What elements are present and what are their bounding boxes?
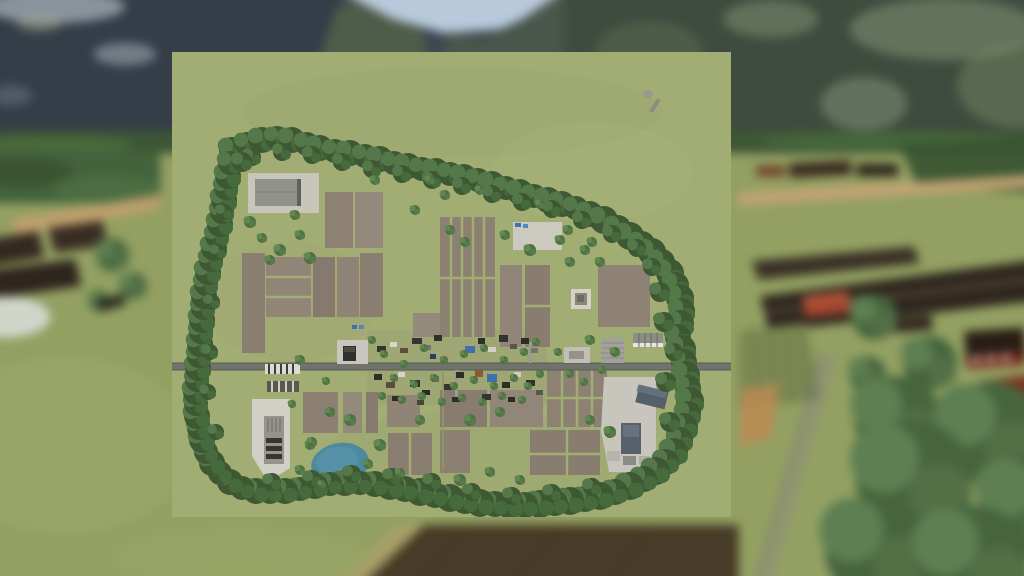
map-tree [568,229,574,235]
map-tree [430,374,435,379]
map-tree [295,214,301,220]
forest-tree-cluster [494,501,508,515]
forest-tree-cluster [627,239,638,250]
map-tree [450,382,455,387]
village-building [502,382,510,388]
map-tree [500,356,505,361]
map-tree [554,348,559,353]
map-tree [307,437,313,443]
forest-tree-cluster [599,493,614,508]
map-tree [425,175,431,181]
foreground-tree [850,378,902,430]
forest-tree-cluster [248,128,264,144]
forest-tree-cluster [217,152,231,166]
village-building [475,370,483,377]
map-tree [382,395,386,399]
map-tree [273,244,280,251]
map-tree [484,347,488,351]
map-tree [584,381,588,385]
map-tree [373,439,380,446]
map-tree [504,359,508,363]
map-tree [592,241,598,247]
map-tree [424,347,428,351]
village-building [374,374,382,380]
map-tree [485,467,491,473]
map-tree [363,459,369,465]
map-tree [290,210,296,216]
map-tree [602,369,606,373]
village-building [531,348,538,353]
forest-tree-cluster [215,204,225,214]
forest-tree-cluster [231,153,243,165]
forest-tree-cluster [663,320,674,331]
map-preview-overlay [172,52,731,517]
forest-tree-cluster [211,300,220,309]
map-tree [265,255,271,261]
forest-tree-cluster [207,424,217,434]
field-plot [366,392,378,433]
forest-tree-cluster [255,488,269,502]
map-tree [459,479,466,486]
village-building [536,390,543,395]
map-tree [609,431,616,438]
map-tree [402,399,406,403]
stall-front [633,343,663,347]
map-tree [378,392,383,397]
scree [723,0,818,37]
field-plot [413,313,440,337]
forest-tree-cluster [351,472,361,482]
blue-bin [352,325,357,329]
map-tree [480,189,486,195]
forest-tree-cluster [217,250,226,259]
map-tree [257,233,263,239]
map-tree [249,221,256,228]
forest-tree-cluster [223,210,232,219]
map-tree [453,474,460,481]
forest-tree-cluster [264,127,278,141]
map-tree [322,483,326,487]
map-tree [565,257,571,263]
map-tree [598,366,603,371]
map-tree [420,344,425,349]
field-plot [360,253,383,317]
blue-equipment [515,223,521,227]
forest-tree-cluster [382,468,393,479]
silo-bar [266,438,282,443]
forest-tree-cluster [461,184,471,194]
forest-tree-cluster [434,492,448,506]
map-tree [600,261,606,267]
forest-tree-cluster [201,344,211,354]
map-tree [535,199,541,205]
map-tree [590,419,596,425]
blue-equipment [523,224,528,228]
map-tree [570,373,574,377]
forest-tree-cluster [611,232,621,242]
barn-roof-2-light [623,425,639,437]
field-plot [500,265,522,347]
map-tree [522,399,526,403]
map-tree [322,377,327,382]
forest-tree-cluster [581,218,591,228]
field-plot [598,265,650,327]
map-tree [532,338,537,343]
map-tree [270,259,276,265]
field-plot [337,257,359,317]
map-tree [379,444,386,451]
barn-window [973,356,980,363]
forest-tree-cluster [262,473,273,484]
vehicle-cab [344,347,355,352]
bg-tree [872,311,897,336]
forest-tree-cluster [381,152,395,166]
forest-tree-cluster [203,294,213,304]
forest-tree-cluster [404,486,418,500]
bg-tree [848,357,870,379]
field-plot [266,257,311,317]
forest-tree-cluster [209,350,218,359]
map-tree [585,335,591,341]
forest-tree-cluster [664,343,675,354]
map-tree [395,468,401,474]
forest-tree-cluster [512,193,523,204]
bg-tree [901,337,933,369]
map-tree [394,377,398,381]
soil-plot-right [857,164,898,176]
forest-tree-cluster [449,495,464,510]
forest-tree-cluster [215,430,224,439]
forest-tree-cluster [655,373,667,385]
map-tree [480,344,485,349]
map-tree [415,209,421,215]
map-tree [470,376,475,381]
map-tree [555,235,561,241]
forest-tree-cluster [329,481,342,494]
map-tree [420,419,426,425]
bg-tree [849,295,876,322]
forest-tree-cluster [524,502,538,516]
barn-window [1002,354,1009,361]
silo-bar [266,454,282,459]
village-building [417,400,424,405]
forest-tree-cluster [269,489,282,502]
map-tree [498,392,503,397]
map-tree [300,359,306,365]
forest-tree-cluster [478,172,494,188]
forest-tree-cluster [302,146,313,157]
forest-tree-cluster [554,500,568,514]
map-tree [540,203,546,209]
map-tree [368,336,373,341]
village-building [521,338,529,344]
forest-tree-cluster [332,153,343,164]
forest-tree-cluster [209,244,219,254]
forest-tree-cluster [322,140,336,154]
forest-tree-cluster [362,160,373,171]
forest-tree-cluster [342,465,353,476]
map-tree [540,373,544,377]
forest-tree-cluster [629,483,644,498]
forest-tree-cluster [659,413,671,425]
map-tree [603,426,610,433]
map-tree [312,441,318,447]
map-tree [518,396,523,401]
barn-window [988,355,995,362]
forest-tree-cluster [272,143,283,154]
forest-tree-cluster [614,489,628,503]
forest-tree-cluster [602,225,613,236]
map-tree [343,414,350,421]
forest-tree-cluster [506,180,522,196]
map-tree [300,469,306,475]
map-tree [460,237,466,243]
forest-tree-cluster [511,494,521,504]
map-tree [490,471,496,477]
forest-tree-cluster [491,192,501,202]
foreground-tree [850,423,920,493]
map-tree [279,249,286,256]
forest-tree-cluster [452,177,463,188]
map-tree [295,465,301,471]
main-road [172,363,731,370]
bg-tree [111,251,129,269]
red-plot [756,166,785,176]
field-plot [343,392,362,433]
map-tree [590,339,596,345]
forest-tree-cluster [281,150,291,160]
forest-tree-cluster [271,480,281,490]
forest-tree-cluster [234,133,248,147]
bg-tree [94,239,114,259]
forest-tree-cluster [655,468,670,483]
forest-tree-cluster [207,390,216,399]
bg-tree [132,283,147,298]
snow-patch [94,43,156,66]
map-tree [390,374,395,379]
map-tree [262,237,268,243]
village-building [488,347,496,352]
map-tree [372,339,376,343]
forest-tree-cluster [366,147,382,163]
snow-patch [16,15,62,32]
map-tree [502,395,506,399]
map-tree [458,394,463,399]
map-tree [570,261,576,267]
map-tree [460,350,465,355]
map-tree [490,382,495,387]
map-tree [566,370,571,375]
map-tree [415,415,421,421]
map-tree [303,252,310,259]
map-tree [440,356,445,361]
map-tree [410,380,415,385]
field-plot [355,192,383,248]
map-tree [563,225,569,231]
forest-tree-cluster [563,197,577,211]
map-tree [558,351,562,355]
outbuilding [607,451,620,461]
map-tree [300,234,306,240]
map-tree [330,411,336,417]
forest-tree-cluster [284,488,298,502]
map-tree [585,415,591,421]
forest-tree-cluster [642,258,653,269]
map-tree [524,351,528,355]
map-tree [370,175,376,181]
forest-tree-cluster [251,155,261,165]
map-tree [410,205,416,211]
map-tree [524,382,529,387]
field-plot [313,257,335,317]
map-tree [495,407,501,413]
map-tree [375,179,381,185]
map-tree [368,463,374,469]
map-tree [462,397,466,401]
map-tree [587,237,593,243]
map-tree [404,363,408,367]
map-tree [580,245,586,251]
village-building [478,338,485,344]
map-tree [520,479,526,485]
forest-tree-cluster [521,200,531,210]
forest-tree-cluster [542,484,553,495]
forest-tree-cluster [401,172,411,182]
forest-tree-cluster [669,420,680,431]
map-tree [380,350,385,355]
forest-tree-cluster [653,313,665,325]
map-tree [400,472,406,478]
map-tree [585,249,591,255]
map-tree [536,341,540,345]
forest-tree-cluster [551,491,561,501]
village-building [487,374,497,382]
forest-tree-cluster [241,160,252,171]
map-tree [595,257,601,263]
village-building [434,335,442,341]
forest-tree-cluster [352,145,366,159]
forest-tree-cluster [462,483,473,494]
map-tree [325,407,331,413]
forest-tree-cluster [409,158,423,172]
map-tree [434,377,438,381]
forest-tree-cluster [649,283,661,295]
map-tree [580,378,585,383]
map-tree [292,403,296,407]
village-building [510,344,517,349]
map-tree [398,396,403,401]
map-tree [463,414,470,421]
forest-tree-cluster [659,290,670,301]
forest-tree-cluster [584,496,598,510]
field-plot [530,430,600,475]
village-building [499,335,508,342]
map-tree [309,257,316,264]
greenhouse-row [265,364,300,374]
map-tree [520,348,525,353]
field-plot [440,430,470,473]
map-tree [515,475,521,481]
map-tree [464,353,468,357]
scree [820,77,907,131]
forest-tree-cluster [392,165,403,176]
map-tree [444,359,448,363]
foreground-tree [819,498,884,563]
map-tree [474,379,478,383]
forest-tree-cluster [479,500,494,515]
map-tree [430,179,436,185]
map-tree [295,230,301,236]
forest-tree-cluster [636,246,646,256]
map-tree [510,374,515,379]
map-tree [475,185,481,191]
forest-tree-cluster [582,478,593,489]
forest-tree-cluster [218,138,234,154]
blue-bin [359,325,364,329]
map-tree [400,360,405,365]
map-tree [505,234,511,240]
village-building [456,372,464,378]
forest-tree-cluster [422,473,433,484]
village-building [430,354,436,359]
map-tree [326,380,330,384]
forest-tree-cluster [651,265,661,275]
map-tree [442,401,446,405]
field-plot [325,192,353,248]
village-building [400,348,408,353]
foreground-tree [912,508,979,575]
map-tree [445,194,451,200]
map-tree [536,370,541,375]
forest-tree-cluster [502,487,513,498]
map-tree [482,401,486,405]
map-tree [243,216,250,223]
forest-tree-cluster [278,128,294,144]
farm-building-core [577,295,584,302]
rock [643,90,653,98]
map-preview-image [172,52,731,517]
map-tree [438,398,443,403]
map-tree [494,385,498,389]
map-tree [349,419,356,426]
forest-tree-cluster [551,207,561,217]
map-tree [288,400,293,405]
map-tree [418,392,423,397]
map-tree [610,347,616,353]
silo-bar [266,446,282,451]
village-building [412,338,422,344]
village-building [508,397,515,402]
forest-tree-cluster [665,380,676,391]
forest-tree-cluster [431,480,441,490]
map-tree [414,383,418,387]
screenshot-stage [0,0,1024,576]
forest-tree-cluster [299,486,312,499]
forest-tree-cluster [572,211,583,222]
roadside-building [569,351,584,359]
forest-tree-cluster [341,160,351,170]
map-tree [318,480,323,485]
village-building [398,372,405,377]
forest-tree-cluster [199,384,209,394]
map-tree [445,225,451,231]
forest-tree-cluster [591,485,601,495]
forest-tree-cluster [311,153,321,163]
map-tree [514,377,518,381]
forest-tree-cluster [569,498,584,513]
forest-tree-cluster [589,207,606,224]
map-tree [528,385,532,389]
